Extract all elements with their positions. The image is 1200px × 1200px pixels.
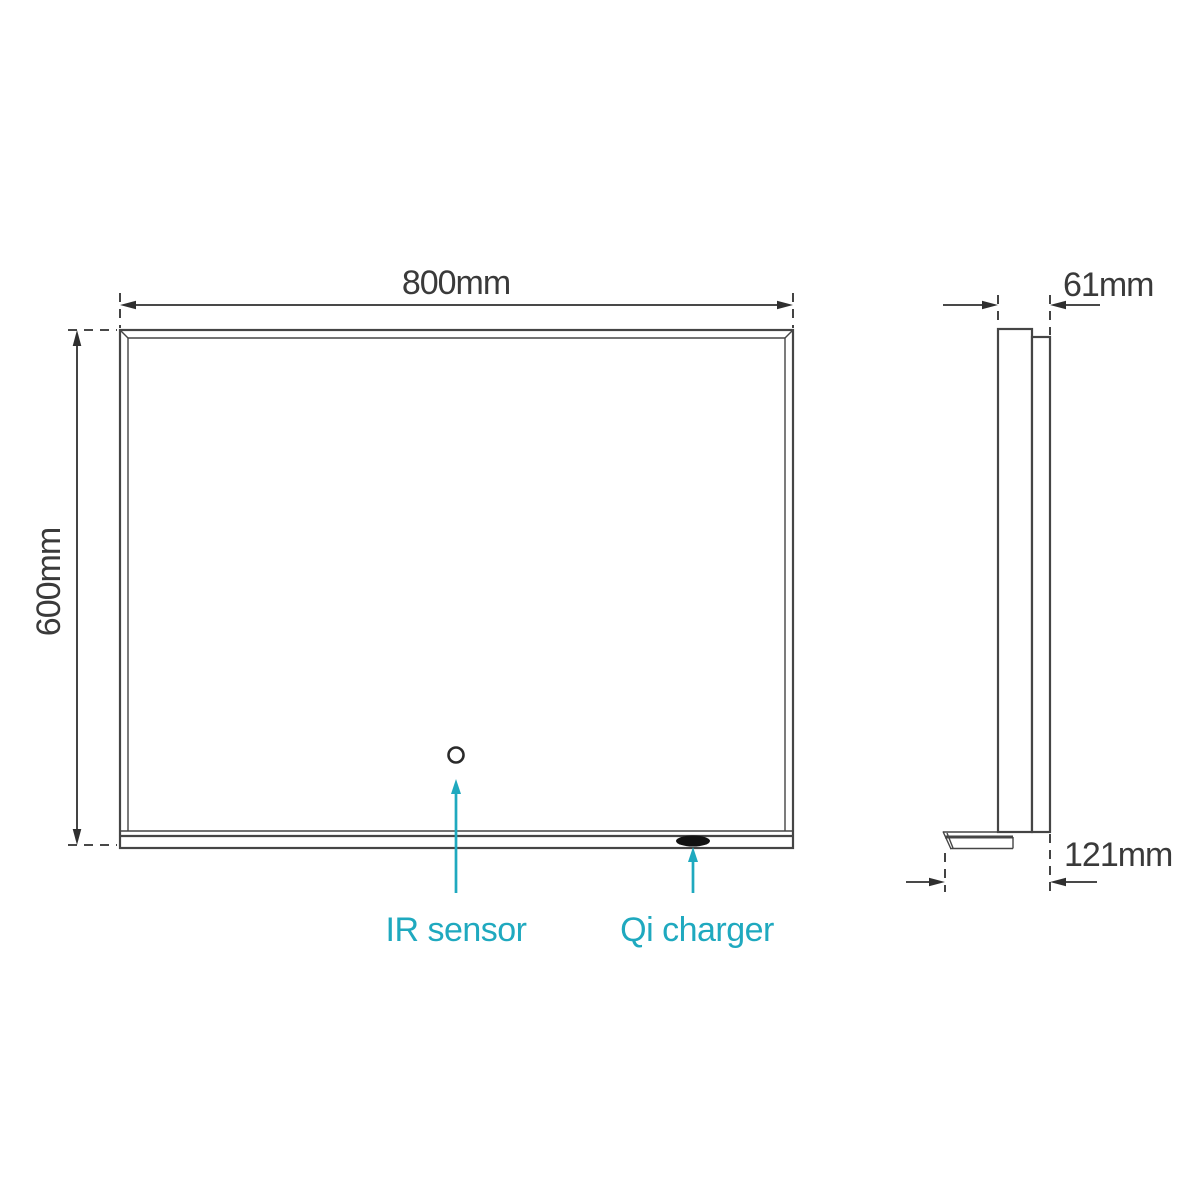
qi-charger-label: Qi charger [620, 911, 774, 949]
side-back-panel [1032, 337, 1050, 832]
side-view [943, 329, 1050, 849]
mirror-outer-frame [120, 330, 793, 848]
shelf-depth-dimension-label: 121mm [1064, 836, 1172, 874]
dimension-width: 800mm [120, 264, 793, 328]
arrow-up-icon [688, 847, 698, 862]
ir-sensor-dot [449, 748, 464, 763]
depth-dimension-label: 61mm [1063, 266, 1153, 304]
arrow-left-icon [1050, 878, 1066, 887]
arrow-up-icon [73, 330, 82, 346]
arrow-right-icon [982, 301, 998, 310]
dimension-height: 600mm [30, 330, 117, 845]
side-shelf-profile [943, 832, 1050, 850]
mirror-technical-drawing: 800mm 600mm [0, 0, 1200, 1200]
arrow-down-icon [73, 829, 82, 845]
qi-charger-dot [676, 836, 710, 847]
dimension-shelf-depth: 121mm [906, 834, 1172, 892]
height-dimension-label: 600mm [30, 528, 68, 636]
side-front-panel [998, 329, 1032, 832]
arrow-right-icon [929, 878, 945, 887]
dimension-depth: 61mm [943, 266, 1153, 335]
width-dimension-label: 800mm [402, 264, 510, 302]
annotation-qi-charger: Qi charger [620, 847, 774, 949]
arrow-left-icon [120, 301, 136, 310]
arrow-right-icon [777, 301, 793, 310]
front-view [120, 330, 793, 848]
diagram-canvas: 800mm 600mm [0, 0, 1200, 1200]
ir-sensor-label: IR sensor [386, 911, 527, 949]
